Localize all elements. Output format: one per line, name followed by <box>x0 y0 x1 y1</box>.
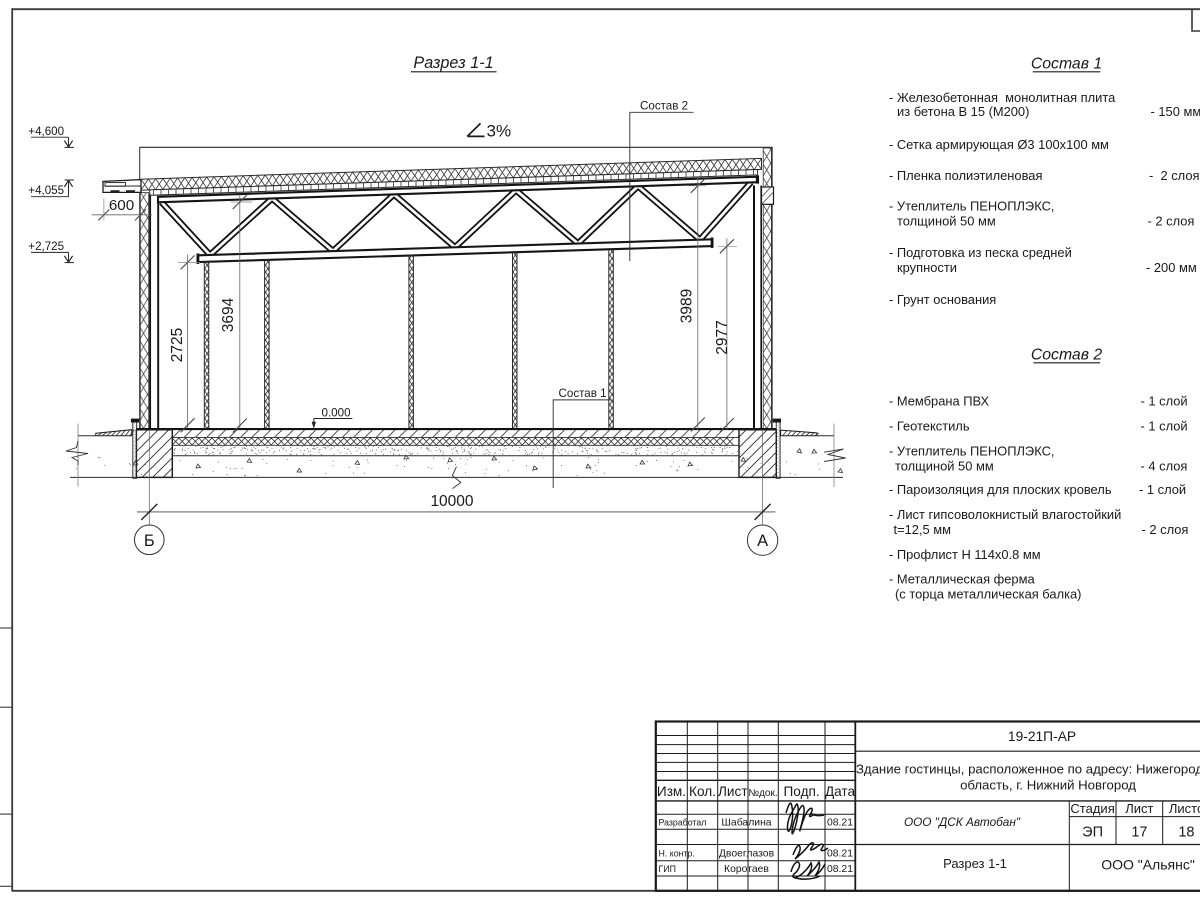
svg-text:крупности: крупности <box>897 260 957 275</box>
svg-text:- Лист гипсоволокнистый влагос: - Лист гипсоволокнистый влагостойкий <box>889 507 1121 522</box>
svg-text:- Подготовка из песка средней: - Подготовка из песка средней <box>889 245 1072 260</box>
svg-text:17: 17 <box>1131 825 1147 841</box>
svg-text:- 150 мм: - 150 мм <box>1151 104 1200 119</box>
svg-text:Состав 1: Состав 1 <box>1031 56 1102 73</box>
svg-text:область, г. Нижний Новгород: область, г. Нижний Новгород <box>960 777 1136 792</box>
svg-text:- Мембрана ПВХ: - Мембрана ПВХ <box>889 394 990 409</box>
svg-text:08.21: 08.21 <box>827 817 853 828</box>
svg-text:- Утеплитель ПЕНОПЛЭКС,: - Утеплитель ПЕНОПЛЭКС, <box>889 444 1054 459</box>
svg-text:Изм.: Изм. <box>657 784 686 799</box>
svg-text:ООО "Альянс": ООО "Альянс" <box>1101 857 1195 873</box>
svg-text:08.21: 08.21 <box>827 849 853 860</box>
svg-text:18: 18 <box>1178 825 1194 841</box>
svg-text:толщиной 50 мм: толщиной 50 мм <box>897 214 996 229</box>
svg-text:- Сетка армирующая Ø3 100х100: - Сетка армирующая Ø3 100х100 мм <box>889 137 1109 152</box>
svg-text:Лист: Лист <box>718 784 748 799</box>
svg-text:- Профлист Н 114х0.8 мм: - Профлист Н 114х0.8 мм <box>889 547 1041 562</box>
svg-text:- 1 слой: - 1 слой <box>1141 419 1188 434</box>
svg-text:Состав 1: Состав 1 <box>559 387 607 400</box>
svg-text:Стадия: Стадия <box>1070 801 1114 816</box>
svg-text:- 2 слоя: - 2 слоя <box>1149 168 1199 183</box>
svg-text:600: 600 <box>109 197 134 214</box>
svg-text:Разработал: Разработал <box>659 817 707 827</box>
svg-text:10000: 10000 <box>430 493 473 510</box>
svg-text:А: А <box>757 532 768 550</box>
svg-text:2725: 2725 <box>169 328 186 362</box>
svg-text:Коротаев: Коротаев <box>724 864 769 875</box>
svg-text:- 2 слоя: - 2 слоя <box>1142 522 1189 537</box>
svg-text:из бетона В 15 (М200): из бетона В 15 (М200) <box>897 104 1029 119</box>
svg-text:Разрез 1-1: Разрез 1-1 <box>943 856 1007 871</box>
svg-text:- 200 мм: - 200 мм <box>1146 260 1197 275</box>
svg-text:ООО "ДСК Автобан": ООО "ДСК Автобан" <box>904 815 1021 829</box>
svg-text:- 1 слой: - 1 слой <box>1139 482 1186 497</box>
svg-text:Состав 2: Состав 2 <box>640 99 688 112</box>
svg-text:0.000: 0.000 <box>322 407 351 420</box>
svg-text:Дата: Дата <box>825 784 856 799</box>
svg-text:t=12,5 мм: t=12,5 мм <box>894 522 952 537</box>
svg-text:Кол.: Кол. <box>689 784 716 799</box>
svg-text:толщиной 50 мм: толщиной 50 мм <box>895 459 994 474</box>
svg-text:ГИП: ГИП <box>659 864 676 874</box>
svg-text:Здание гостинцы, расположенное: Здание гостинцы, расположенное по адресу… <box>856 762 1200 777</box>
svg-text:- Пароизоляция для плоских кро: - Пароизоляция для плоских кровель <box>889 482 1112 497</box>
svg-text:2977: 2977 <box>714 320 731 354</box>
svg-text:3%: 3% <box>487 121 512 140</box>
svg-text:- 1 слой: - 1 слой <box>1141 394 1188 409</box>
svg-text:08.21: 08.21 <box>827 864 853 875</box>
svg-text:+2,725: +2,725 <box>28 240 64 253</box>
svg-text:- 4 слоя: - 4 слоя <box>1141 459 1188 474</box>
svg-text:ЭП: ЭП <box>1082 825 1103 841</box>
svg-text:3989: 3989 <box>678 289 695 323</box>
svg-text:- Металлическая ферма: - Металлическая ферма <box>889 572 1035 587</box>
svg-text:Подп.: Подп. <box>784 784 820 799</box>
svg-text:Н. контр.: Н. контр. <box>659 849 695 859</box>
svg-text:Состав 2: Состав 2 <box>1031 347 1102 364</box>
svg-text:(с торца металлическая балка): (с торца металлическая балка) <box>895 587 1081 602</box>
svg-text:3694: 3694 <box>220 297 237 332</box>
svg-text:19-21П-АР: 19-21П-АР <box>1008 729 1076 744</box>
svg-text:+4,600: +4,600 <box>28 125 64 138</box>
svg-text:Листов: Листов <box>1169 801 1200 816</box>
svg-text:Разрез 1-1: Разрез 1-1 <box>413 54 493 72</box>
svg-text:Лист: Лист <box>1125 801 1153 816</box>
svg-text:Б: Б <box>144 532 155 550</box>
svg-text:- Железобетонная монолитная п: - Железобетонная монолитная плита <box>889 90 1116 105</box>
svg-text:№док.: №док. <box>748 788 777 799</box>
svg-text:Шабалина: Шабалина <box>721 816 771 828</box>
svg-text:- Геотекстиль: - Геотекстиль <box>889 419 970 434</box>
svg-text:- Грунт основания: - Грунт основания <box>889 292 996 307</box>
svg-text:Двоеглазов: Двоеглазов <box>719 849 775 860</box>
svg-text:- 2 слоя: - 2 слоя <box>1148 214 1195 229</box>
svg-text:+4,055: +4,055 <box>28 184 64 197</box>
svg-text:- Пленка полиэтиленовая: - Пленка полиэтиленовая <box>889 168 1042 183</box>
svg-text:- Утеплитель ПЕНОПЛЭКС,: - Утеплитель ПЕНОПЛЭКС, <box>889 199 1054 214</box>
